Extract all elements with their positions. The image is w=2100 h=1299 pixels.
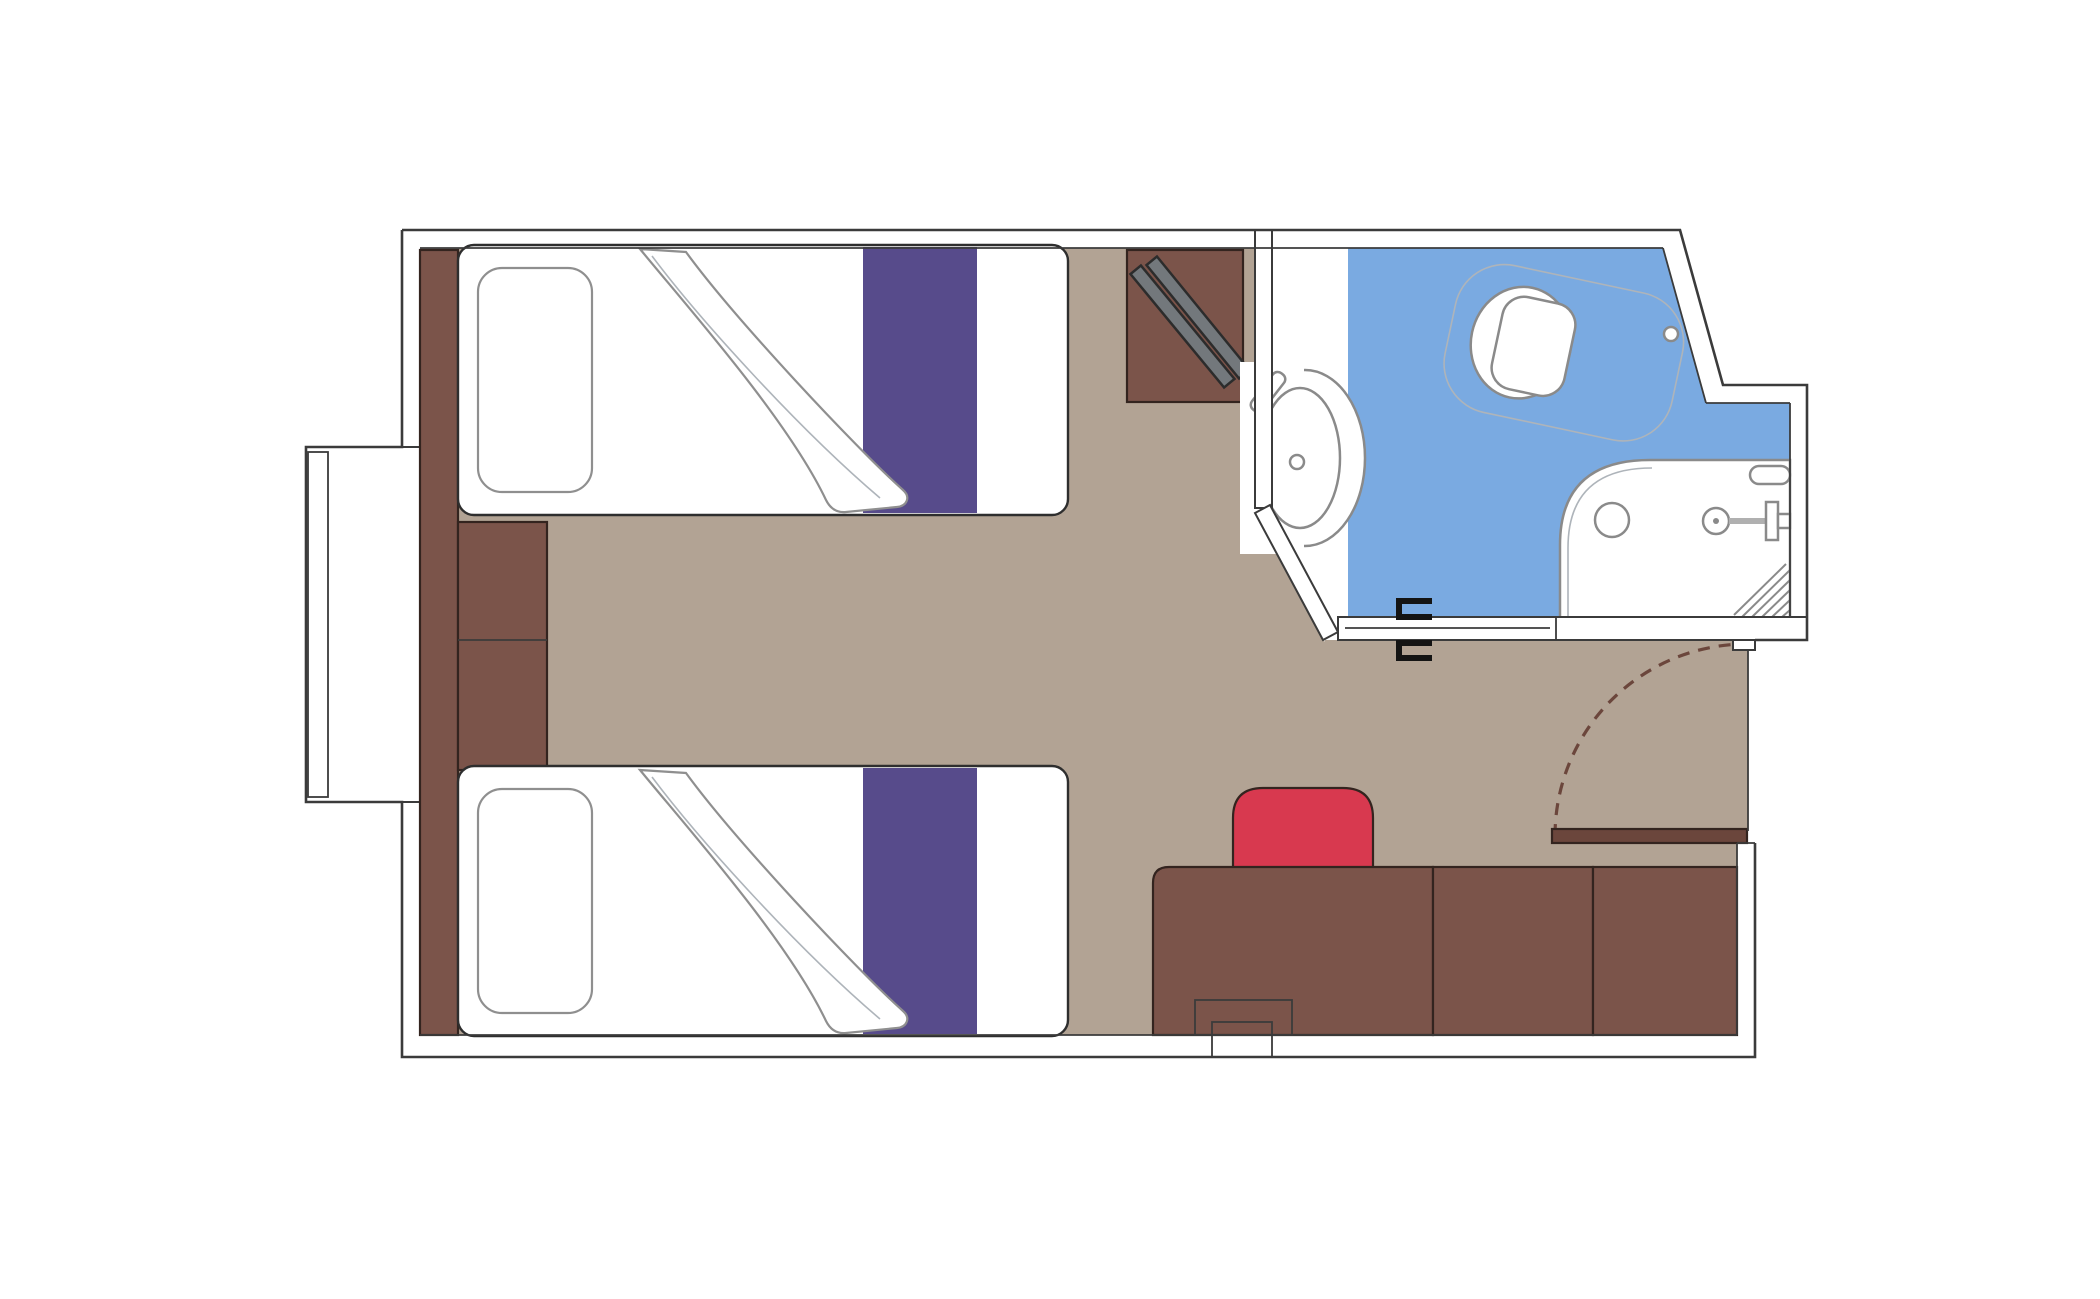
nightstand-body <box>458 522 547 770</box>
bathroom-left-wall <box>1255 230 1272 508</box>
shower <box>1560 460 1790 620</box>
toilet-flush-button <box>1664 327 1678 341</box>
headboard-panel <box>420 250 458 1035</box>
window-bay-frame <box>306 447 420 802</box>
wardrobe <box>1127 250 1243 402</box>
floor-plan-canvas <box>0 0 2100 1299</box>
door-stop <box>1733 640 1755 650</box>
pillow <box>478 268 592 492</box>
sink-drain <box>1290 455 1304 469</box>
pillow <box>478 789 592 1013</box>
nightstand <box>458 522 547 770</box>
window-bay <box>306 447 420 802</box>
entrance-door-leaf <box>1552 829 1747 843</box>
shower-shelf <box>1750 466 1790 484</box>
floor-plan-drawing <box>0 0 2100 1299</box>
desk-chair <box>1233 788 1373 872</box>
desk-panel <box>1593 867 1737 1035</box>
shower-handle <box>1766 502 1778 540</box>
desk-panel <box>1433 867 1593 1035</box>
bathroom <box>1240 230 1807 658</box>
twin-bed-lower <box>458 766 1068 1036</box>
shower-mixer-center <box>1713 518 1719 524</box>
shower-wall-mount <box>1778 514 1790 528</box>
desk <box>1153 867 1737 1057</box>
shower-drain <box>1595 503 1629 537</box>
twin-bed-upper <box>458 245 1068 515</box>
